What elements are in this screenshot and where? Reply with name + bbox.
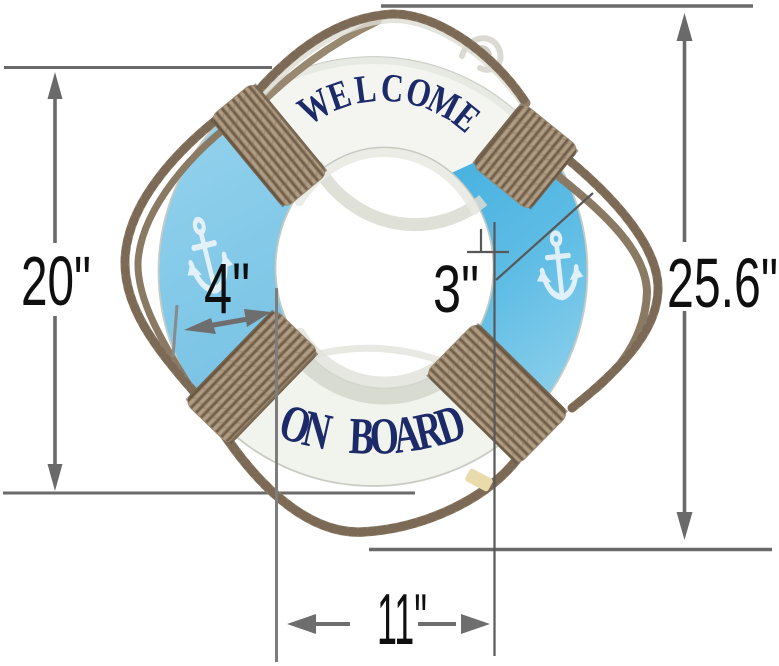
svg-text:20": 20" — [21, 242, 91, 320]
svg-text:11": 11" — [377, 580, 427, 660]
svg-text:25.6": 25.6" — [667, 244, 778, 322]
svg-text:C: C — [380, 65, 406, 111]
svg-text:4": 4" — [204, 250, 250, 329]
svg-text:3": 3" — [433, 252, 479, 327]
